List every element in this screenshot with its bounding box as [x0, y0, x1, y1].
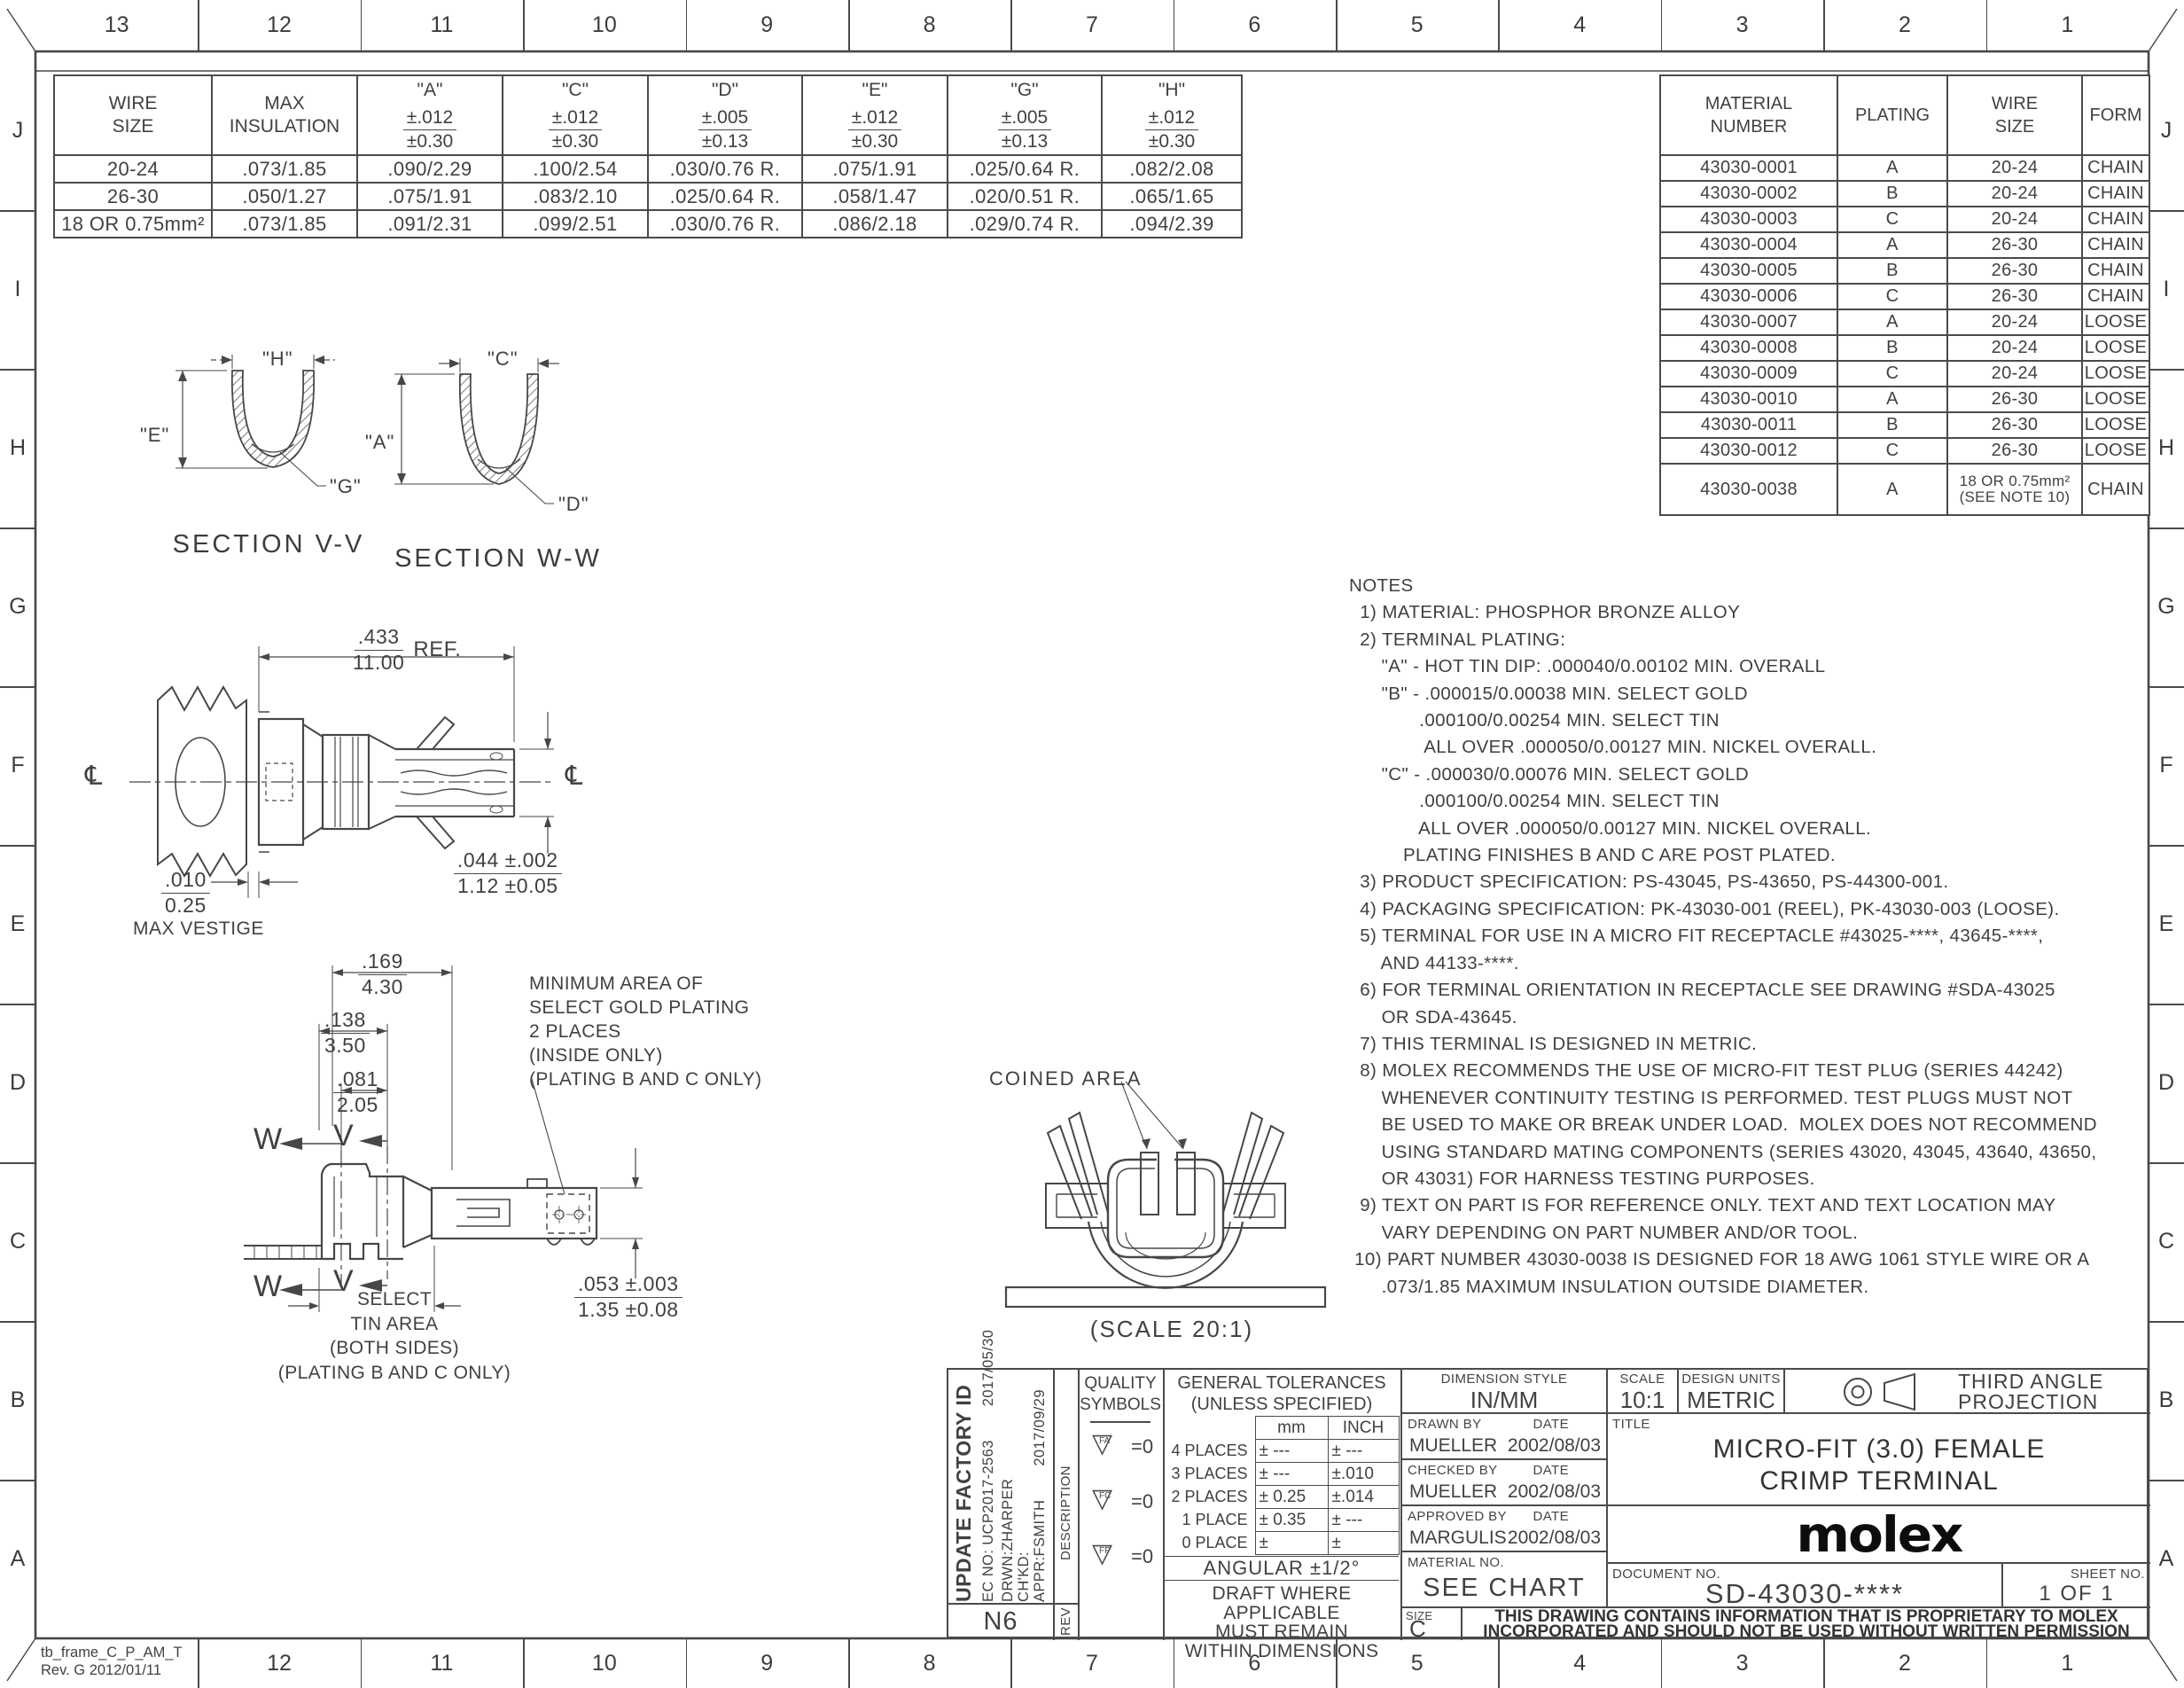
note-line: .000100/0.00254 MIN. SELECT TIN	[1349, 788, 2097, 815]
dim-table-cell: .050/1.27	[212, 183, 357, 210]
zone-number-bottom: 8	[848, 1651, 1010, 1676]
sheet-box: SHEET NO. 1 OF 1	[2003, 1564, 2150, 1608]
description-column: DESCRIPTION REV	[1055, 1370, 1080, 1640]
note-line: AND 44133-****.	[1349, 950, 2097, 977]
tolerances-title-1: GENERAL TOLERANCES	[1165, 1372, 1399, 1394]
dim-table-cell: .094/2.39	[1102, 210, 1242, 238]
notes-block: NOTES 1) MATERIAL: PHOSPHOR BRONZE ALLOY…	[1349, 573, 2097, 1301]
dim-table-cell: 26-30	[54, 183, 212, 210]
zone-letter-left: F	[0, 753, 35, 778]
zone-letter-right: J	[2149, 118, 2184, 144]
zone-number-bottom: 2	[1823, 1651, 1985, 1676]
section-vv-label: SECTION V-V	[167, 530, 370, 559]
dimension-style-value: IN/MM	[1402, 1387, 1606, 1414]
centerline-symbol-right: ℄	[565, 761, 583, 792]
note-line: 10) PART NUMBER 43030-0038 IS DESIGNED F…	[1349, 1246, 2097, 1273]
note-line: VARY DEPENDING ON PART NUMBER AND/OR TOO…	[1349, 1220, 2097, 1246]
drawn-date-label: DATE	[1533, 1417, 1570, 1432]
flat-dim-053: .053 ±.0031.35 ±0.08	[574, 1273, 682, 1322]
note-line: NOTES	[1349, 573, 2097, 599]
part-table-cell: 20-24	[1947, 155, 2082, 181]
tolerance-unit-header: INCH	[1328, 1417, 1399, 1440]
material-box: MATERIAL NO. SEE CHART	[1402, 1552, 1608, 1608]
dim-col-tolerance: ±0.30	[552, 130, 598, 152]
dim-col-tolerance: ±.012	[848, 107, 901, 130]
flat-dim-169: .1694.30	[358, 950, 407, 999]
zone-letter-right: C	[2149, 1229, 2184, 1254]
angular-tolerance: ANGULAR ±1/2°	[1165, 1556, 1399, 1581]
part-table-cell: 43030-0008	[1660, 335, 1837, 361]
part-table-cell: B	[1837, 335, 1947, 361]
dim-table-cell: .083/2.10	[503, 183, 648, 210]
dim-table-header: "A"±.012±0.30	[357, 75, 503, 155]
revision-drwn: DRWN:ZHARPER	[1000, 1479, 1017, 1602]
zone-letter-left: J	[0, 118, 35, 144]
dim-col-tolerance: ±.012	[549, 107, 602, 130]
part-table-cell: A	[1837, 387, 1947, 412]
part-table-cell: B	[1837, 412, 1947, 438]
part-table-cell: 43030-0011	[1660, 412, 1837, 438]
part-table-cell: 43030-0012	[1660, 438, 1837, 464]
scale-label: SCALE	[1608, 1371, 1677, 1387]
section-ww-dim-a: "A"	[365, 431, 394, 454]
zone-number-bottom: 5	[1336, 1651, 1498, 1676]
design-units-box: DESIGN UNITS METRIC	[1679, 1370, 1785, 1414]
dim-col-tolerance: ±0.30	[852, 130, 898, 152]
part-table-cell: LOOSE	[2082, 309, 2149, 335]
ruler-divider	[0, 686, 35, 688]
flat-dim-081: .0812.05	[333, 1068, 382, 1117]
section-ww-label: SECTION W-W	[392, 544, 604, 574]
ruler-divider	[0, 210, 35, 212]
part-table-cell: CHAIN	[2082, 464, 2149, 515]
ruler-divider	[2149, 686, 2184, 688]
note-line: 5) TERMINAL FOR USE IN A MICRO FIT RECEP…	[1349, 923, 2097, 949]
dim-table-cell: .073/1.85	[212, 155, 357, 183]
title-label: TITLE	[1612, 1417, 1650, 1432]
part-table-cell: LOOSE	[2082, 412, 2149, 438]
zone-number-bottom: 12	[198, 1651, 360, 1676]
note-line: PLATING FINISHES B AND C ARE POST PLATED…	[1349, 842, 2097, 869]
zone-letter-left: I	[0, 277, 35, 302]
part-table-cell: 26-30	[1947, 284, 2082, 309]
tolerance-cell: ±	[1328, 1532, 1399, 1555]
dim-col-title: "C"	[503, 79, 647, 102]
note-line: ALL OVER .000050/0.00127 MIN. NICKEL OVE…	[1349, 734, 2097, 761]
flat-dim-138: .1383.50	[321, 1009, 370, 1058]
section-ww-dim-c: "C"	[487, 348, 519, 371]
tolerance-cell: 0 PLACE	[1165, 1532, 1255, 1555]
dim-table-cell: .065/1.65	[1102, 183, 1242, 210]
tin-area-note: SELECT TIN AREA (BOTH SIDES) (PLATING B …	[248, 1287, 541, 1385]
section-vv-drawing	[168, 353, 372, 539]
dimension-style-box: DIMENSION STYLE IN/MM	[1402, 1370, 1608, 1414]
dim-col-tolerance: ±0.30	[1149, 130, 1195, 152]
dim-table-cell: .091/2.31	[357, 210, 503, 238]
zone-letter-left: D	[0, 1070, 35, 1096]
quality-flag-row: ▽FC=0	[1092, 1489, 1153, 1543]
dim-table-cell: .075/1.91	[802, 155, 948, 183]
flag-letter: FA	[1099, 1436, 1110, 1446]
checked-date-value: 2002/08/03	[1508, 1481, 1601, 1503]
dim-table-cell: .025/0.64 R.	[648, 183, 802, 210]
revision-chkd: CH'KD:	[1016, 1551, 1033, 1602]
dim-table-header: "D"±.005±0.13	[648, 75, 802, 155]
tolerance-cell: ± ---	[1328, 1509, 1399, 1532]
ruler-divider	[2149, 1321, 2184, 1323]
zone-number-top: 4	[1498, 12, 1660, 38]
dim-col-title: "A"	[358, 79, 502, 102]
dim-table-cell: .058/1.47	[802, 183, 948, 210]
ruler-divider	[1498, 1638, 1500, 1688]
tolerance-cell: 4 PLACES	[1165, 1440, 1255, 1463]
checked-by-value: MUELLER	[1409, 1481, 1497, 1503]
dim-col-tolerance: ±.012	[1145, 107, 1198, 130]
part-table-cell: 18 OR 0.75mm² (SEE NOTE 10)	[1947, 464, 2082, 515]
note-line: BE USED TO MAKE OR BREAK UNDER LOAD. MOL…	[1349, 1112, 2097, 1138]
projection-label: THIRD ANGLE PROJECTION	[1958, 1371, 2103, 1412]
part-table-cell: C	[1837, 438, 1947, 464]
ruler-divider	[1336, 1638, 1338, 1688]
ec-date: 2017/05/30	[980, 1330, 996, 1407]
ruler-divider	[686, 1638, 688, 1688]
part-table-cell: A	[1837, 464, 1947, 515]
ruler-divider	[361, 1638, 363, 1688]
zone-number-bottom: 4	[1498, 1651, 1660, 1676]
zone-letter-right: G	[2149, 594, 2184, 620]
ruler-divider	[0, 1480, 35, 1481]
dim-col-title: MAX INSULATION	[213, 92, 356, 139]
coined-area-label: COINED AREA	[989, 1067, 1142, 1090]
zone-letter-left: E	[0, 911, 35, 937]
ruler-divider	[1823, 1638, 1825, 1688]
ruler-divider	[0, 369, 35, 371]
section-vv-dim-g: "G"	[330, 475, 362, 498]
revision-strip: UPDATE FACTORY ID EC NO: UCP2017-2563201…	[948, 1370, 1055, 1640]
part-table-cell: C	[1837, 284, 1947, 309]
checked-by-box: CHECKED BY DATE MUELLER 2002/08/03	[1402, 1460, 1608, 1506]
drawing-title: MICRO-FIT (3.0) FEMALE CRIMP TERMINAL	[1608, 1434, 2150, 1497]
tolerance-cell: ± 0.25	[1255, 1486, 1328, 1509]
design-units-label: DESIGN UNITS	[1679, 1371, 1783, 1387]
appr-name: APPR:FSMITH	[1032, 1500, 1048, 1602]
part-table-cell: 26-30	[1947, 258, 2082, 284]
note-line: "A" - HOT TIN DIP: .000040/0.00102 MIN. …	[1349, 653, 2097, 680]
tolerance-table: mmINCH4 PLACES± ---± ---3 PLACES± ---±.0…	[1165, 1416, 1400, 1555]
ruler-divider	[2149, 1480, 2184, 1481]
approved-by-box: APPROVED BY DATE MARGULIS 2002/08/03	[1402, 1506, 1608, 1552]
dim-table-cell: .100/2.54	[503, 155, 648, 183]
dim-table-cell: .020/0.51 R.	[948, 183, 1102, 210]
ruler-divider	[848, 0, 850, 51]
drawn-by-label: DRAWN BY	[1408, 1417, 1481, 1432]
tolerance-cell: 3 PLACES	[1165, 1463, 1255, 1486]
tolerance-cell: ±.014	[1328, 1486, 1399, 1509]
zone-number-top: 3	[1661, 12, 1823, 38]
ruler-divider	[0, 1162, 35, 1164]
dimension-style-label: DIMENSION STYLE	[1402, 1371, 1606, 1387]
flag-letter: FP	[1099, 1546, 1111, 1556]
ruler-divider	[0, 1004, 35, 1005]
part-table-cell: 20-24	[1947, 361, 2082, 387]
note-line: 8) MOLEX RECOMMENDS THE USE OF MICRO-FIT…	[1349, 1058, 2097, 1084]
note-line: OR 43031) FOR HARNESS TESTING PURPOSES.	[1349, 1166, 2097, 1192]
note-line: "B" - .000015/0.00038 MIN. SELECT GOLD	[1349, 681, 2097, 707]
zone-number-bottom: 1	[1986, 1651, 2149, 1676]
zone-letter-right: A	[2149, 1546, 2184, 1572]
quality-title: QUALITY SYMBOLS	[1080, 1373, 1161, 1416]
part-table-cell: LOOSE	[2082, 387, 2149, 412]
tolerance-unit-header: mm	[1255, 1417, 1328, 1440]
drawn-by-value: MUELLER	[1409, 1435, 1497, 1457]
rev-col-label: REV	[1058, 1607, 1073, 1636]
zone-number-bottom: 11	[361, 1651, 523, 1676]
cut-letter-v-top: V	[333, 1119, 354, 1153]
zone-number-bottom: 3	[1661, 1651, 1823, 1676]
part-table-header: PLATING	[1837, 75, 1947, 155]
draft-note: DRAFT WHERE APPLICABLE MUST REMAIN WITHI…	[1165, 1584, 1399, 1661]
inspection-flag-icon: ▽FC	[1092, 1489, 1120, 1513]
cut-letter-w-top: W	[253, 1122, 283, 1157]
side-length-dim: .43311.00 REF.	[353, 626, 461, 675]
ruler-divider	[1498, 0, 1500, 51]
dim-col-title: "H"	[1103, 79, 1241, 102]
section-vv-dim-e: "E"	[140, 424, 169, 447]
dim-table-header: MAX INSULATION	[212, 75, 357, 155]
dim-col-tolerance: ±.005	[998, 107, 1051, 130]
zone-number-bottom: 10	[523, 1651, 685, 1676]
zone-letter-right: H	[2149, 435, 2184, 461]
approved-date-label: DATE	[1533, 1509, 1570, 1524]
part-table-cell: 43030-0002	[1660, 181, 1837, 207]
dimension-table-grid: WIRE SIZEMAX INSULATION"A"±.012±0.30"C"±…	[53, 74, 1243, 238]
document-box: DOCUMENT NO. SD-43030-****	[1608, 1564, 2003, 1608]
inspection-flag-icon: ▽FA	[1092, 1434, 1120, 1458]
dim-table-cell: .029/0.74 R.	[948, 210, 1102, 238]
tolerance-cell: ± ---	[1255, 1440, 1328, 1463]
dim-table-cell: .030/0.76 R.	[648, 210, 802, 238]
part-table-cell: 26-30	[1947, 438, 2082, 464]
part-table-cell: 20-24	[1947, 207, 2082, 232]
note-line: 1) MATERIAL: PHOSPHOR BRONZE ALLOY	[1349, 599, 2097, 626]
part-table-cell: 43030-0038	[1660, 464, 1837, 515]
ruler-divider	[686, 0, 688, 51]
description-col-label: DESCRIPTION	[1058, 1465, 1073, 1560]
part-table-cell: 43030-0003	[1660, 207, 1837, 232]
ruler-divider	[523, 1638, 525, 1688]
ec-number: EC NO: UCP2017-2563	[980, 1440, 996, 1602]
zone-number-top: 13	[35, 12, 198, 38]
zone-number-top: 1	[1986, 12, 2149, 38]
zone-number-top: 2	[1823, 12, 1985, 38]
section-ww-dim-d: "D"	[558, 493, 589, 516]
ruler-divider	[361, 0, 363, 51]
projection-box: THIRD ANGLE PROJECTION	[1785, 1370, 2150, 1414]
approved-by-label: APPROVED BY	[1408, 1509, 1507, 1524]
part-table-cell: A	[1837, 155, 1947, 181]
part-table-cell: 43030-0004	[1660, 232, 1837, 258]
design-units-value: METRIC	[1679, 1387, 1783, 1414]
ruler-divider	[1010, 1638, 1012, 1688]
dim-table-cell: .090/2.29	[357, 155, 503, 183]
part-table-header: FORM	[2082, 75, 2149, 155]
zone-number-top: 9	[686, 12, 848, 38]
zone-letter-left: H	[0, 435, 35, 461]
part-table-cell: 43030-0001	[1660, 155, 1837, 181]
size-value: C	[1409, 1615, 1426, 1643]
part-table-cell: CHAIN	[2082, 232, 2149, 258]
frame-label: tb_frame_C_P_AM_TRev. G 2012/01/11	[41, 1644, 183, 1679]
part-table-cell: B	[1837, 258, 1947, 284]
revision-description: UPDATE FACTORY ID	[952, 1385, 976, 1602]
inspection-flag-icon: ▽FP	[1092, 1543, 1120, 1568]
ruler-divider	[2149, 210, 2184, 212]
dim-col-tolerance: ±.012	[403, 107, 456, 130]
part-table-grid: MATERIAL NUMBERPLATINGWIRE SIZEFORM43030…	[1659, 74, 2150, 516]
checked-by-label: CHECKED BY	[1408, 1463, 1498, 1478]
quality-symbols-box: QUALITY SYMBOLS ▽FA=0▽FC=0▽FP=0	[1080, 1370, 1165, 1640]
ruler-divider	[198, 1638, 199, 1688]
dim-table-header: "C"±.012±0.30	[503, 75, 648, 155]
part-table-cell: B	[1837, 181, 1947, 207]
note-line: 7) THIS TERMINAL IS DESIGNED IN METRIC.	[1349, 1031, 2097, 1058]
sheet-label: SHEET NO.	[2071, 1567, 2145, 1582]
zone-number-top: 5	[1336, 12, 1498, 38]
part-table-cell: 43030-0010	[1660, 387, 1837, 412]
checked-date-label: DATE	[1533, 1463, 1570, 1478]
ruler-divider	[2149, 527, 2184, 529]
revision-ec-no: EC NO: UCP2017-25632017/05/30	[980, 1330, 997, 1602]
dim-col-title: "G"	[948, 79, 1101, 102]
note-line: 4) PACKAGING SPECIFICATION: PK-43030-001…	[1349, 896, 2097, 923]
dim-col-tolerance: ±.005	[698, 107, 752, 130]
dim-col-tolerance: ±0.13	[702, 130, 748, 152]
proprietary-box: THIS DRAWING CONTAINS INFORMATION THAT I…	[1462, 1608, 2150, 1640]
dim-table-header: "H"±.012±0.30	[1102, 75, 1242, 155]
zone-letter-left: B	[0, 1387, 35, 1413]
ruler-divider	[2149, 1004, 2184, 1005]
zone-letter-right: D	[2149, 1070, 2184, 1096]
flag-value: =0	[1131, 1435, 1153, 1457]
zone-number-top: 6	[1174, 12, 1336, 38]
part-table-cell: C	[1837, 207, 1947, 232]
dim-col-title: WIRE SIZE	[55, 92, 211, 139]
dim-table-header: WIRE SIZE	[54, 75, 212, 155]
zone-number-top: 7	[1010, 12, 1173, 38]
title-block: UPDATE FACTORY ID EC NO: UCP2017-2563201…	[947, 1368, 2149, 1638]
zone-number-top: 11	[361, 12, 523, 38]
dim-table-header: "E"±.012±0.30	[802, 75, 948, 155]
ruler-divider	[523, 0, 525, 51]
dim-col-title: "E"	[803, 79, 947, 102]
zone-number-bottom: 7	[1010, 1651, 1173, 1676]
dim-table-cell: .099/2.51	[503, 210, 648, 238]
note-line: ALL OVER .000050/0.00127 MIN. NICKEL OVE…	[1349, 816, 2097, 842]
side-vestige-dim: .0100.25	[161, 869, 210, 918]
ruler-divider	[2149, 1162, 2184, 1164]
quality-flag-row: ▽FA=0	[1092, 1434, 1153, 1489]
scale-value: 10:1	[1608, 1387, 1677, 1414]
centerline-symbol-left: ℄	[85, 761, 103, 792]
note-line: 6) FOR TERMINAL ORIENTATION IN RECEPTACL…	[1349, 977, 2097, 1004]
part-table-cell: 43030-0006	[1660, 284, 1837, 309]
dim-table-cell: .075/1.91	[357, 183, 503, 210]
zone-number-bottom: 6	[1174, 1651, 1336, 1676]
zone-letter-left: C	[0, 1229, 35, 1254]
ruler-divider	[1661, 1638, 1663, 1688]
drawn-by-box: DRAWN BY DATE MUELLER 2002/08/03	[1402, 1414, 1608, 1460]
note-line: USING STANDARD MATING COMPONENTS (SERIES…	[1349, 1139, 2097, 1166]
flag-value: =0	[1131, 1490, 1153, 1512]
note-line: 9) TEXT ON PART IS FOR REFERENCE ONLY. T…	[1349, 1192, 2097, 1219]
part-table-cell: 26-30	[1947, 387, 2082, 412]
ruler-divider	[1010, 0, 1012, 51]
part-table-cell: LOOSE	[2082, 361, 2149, 387]
tolerances-title-2: (UNLESS SPECIFIED)	[1165, 1394, 1399, 1415]
note-line: 3) PRODUCT SPECIFICATION: PS-43045, PS-4…	[1349, 869, 2097, 895]
dim-col-tolerance: ±0.13	[1002, 130, 1048, 152]
section-vv-dim-h: "H"	[262, 348, 293, 371]
scale-box: SCALE 10:1	[1608, 1370, 1679, 1414]
gold-plating-note: MINIMUM AREA OF SELECT GOLD PLATING 2 PL…	[529, 972, 761, 1091]
quality-flag-row: ▽FP=0	[1092, 1543, 1153, 1598]
proprietary-note: THIS DRAWING CONTAINS INFORMATION THAT I…	[1483, 1609, 2129, 1640]
note-line: .000100/0.00254 MIN. SELECT TIN	[1349, 707, 2097, 734]
part-table-cell: CHAIN	[2082, 155, 2149, 181]
tolerance-cell: ± ---	[1328, 1440, 1399, 1463]
side-vestige-label: MAX VESTIGE	[133, 918, 264, 940]
part-table-cell: 20-24	[1947, 335, 2082, 361]
revision-appr: APPR:FSMITH2017/09/29	[1032, 1389, 1049, 1602]
dim-col-tolerance: ±0.30	[407, 130, 453, 152]
part-table-cell: CHAIN	[2082, 284, 2149, 309]
ruler-divider	[1174, 0, 1175, 51]
part-table-cell: A	[1837, 309, 1947, 335]
note-line: WHENEVER CONTINUITY TESTING IS PERFORMED…	[1349, 1085, 2097, 1112]
side-length-ref: REF.	[413, 637, 461, 662]
material-value: SEE CHART	[1402, 1574, 1606, 1603]
ruler-divider	[848, 1638, 850, 1688]
zone-letter-left: A	[0, 1546, 35, 1572]
note-line: OR SDA-43645.	[1349, 1004, 2097, 1031]
frame-label-line2: Rev. G 2012/01/11	[41, 1661, 183, 1679]
part-table-cell: 20-24	[1947, 181, 2082, 207]
ruler-divider	[0, 527, 35, 529]
ruler-divider	[2149, 845, 2184, 847]
ruler-divider	[0, 1321, 35, 1323]
zone-number-bottom: 9	[686, 1651, 848, 1676]
section-ww-drawing	[386, 355, 598, 550]
title-box: TITLE MICRO-FIT (3.0) FEMALE CRIMP TERMI…	[1608, 1414, 2150, 1506]
appr-date: 2017/09/29	[1032, 1389, 1048, 1466]
tolerance-cell: ±.010	[1328, 1463, 1399, 1486]
dim-table-header: "G"±.005±0.13	[948, 75, 1102, 155]
dim-table-cell: .025/0.64 R.	[948, 155, 1102, 183]
zone-number-top: 8	[848, 12, 1010, 38]
ruler-divider	[1336, 0, 1338, 51]
logo-box: molex	[1608, 1506, 2150, 1564]
part-table-cell: A	[1837, 232, 1947, 258]
molex-logo: molex	[1797, 1505, 1962, 1563]
ruler-divider	[1986, 1638, 1988, 1688]
part-table-cell: 26-30	[1947, 232, 2082, 258]
ruler-divider	[198, 0, 199, 51]
zone-letter-left: G	[0, 594, 35, 620]
note-line: 2) TERMINAL PLATING:	[1349, 627, 2097, 653]
ruler-divider	[1661, 0, 1663, 51]
drawing-sheet: WIRE SIZEMAX INSULATION"A"±.012±0.30"C"±…	[0, 0, 2184, 1688]
approved-by-value: MARGULIS	[1409, 1528, 1507, 1549]
